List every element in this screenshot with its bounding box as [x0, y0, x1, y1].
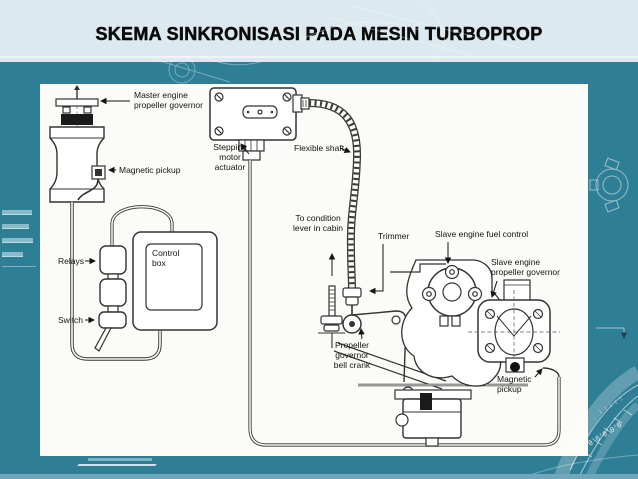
- label-line: Master engine: [134, 90, 203, 100]
- label-relays: Relays: [58, 256, 84, 266]
- arrow-decoration: [596, 328, 624, 338]
- watermark-line: [2, 252, 23, 257]
- slide: SKEMA SINKRONISASI PADA MESIN TURBOPROP: [0, 0, 638, 479]
- label-line: Magnetic: [497, 374, 532, 384]
- footer-text-strip: [88, 458, 152, 461]
- gear-sketch-decoration: [590, 158, 628, 212]
- label-master-governor: Master engine propeller governor: [134, 90, 203, 110]
- label-line: Relays: [58, 256, 84, 266]
- label-control-box: Control box: [152, 248, 179, 268]
- label-line: lever in cabin: [283, 223, 353, 233]
- label-fuel-control: Slave engine fuel control: [435, 229, 528, 239]
- label-magnetic-pickup-slave: Magnetic pickup: [497, 374, 532, 394]
- footer-bottom-strip: [0, 474, 638, 479]
- label-line: Flexible shaft: [294, 143, 344, 153]
- label-line: Control: [152, 248, 179, 258]
- label-magnetic-pickup-master: Magnetic pickup: [119, 165, 180, 175]
- label-line: Magnetic pickup: [119, 165, 180, 175]
- label-stepping-motor: Stepping motor actuator: [204, 142, 256, 172]
- label-flexible-shaft: Flexible shaft: [294, 143, 344, 153]
- label-condition-lever: To condition lever in cabin: [283, 213, 353, 233]
- label-line: pickup: [497, 384, 532, 394]
- label-line: bell crank: [316, 360, 388, 370]
- label-slave-governor: Slave engine propeller governor: [491, 257, 560, 277]
- label-line: To condition: [283, 213, 353, 223]
- label-line: Slave engine: [491, 257, 560, 267]
- label-bell-crank: Propeller governor bell crank: [316, 340, 388, 370]
- footer-decoration-line: [77, 464, 157, 466]
- label-line: Propeller: [316, 340, 388, 350]
- label-trimmer: Trimmer: [378, 231, 409, 241]
- watermark-line: [2, 238, 33, 243]
- label-line: Trimmer: [378, 231, 409, 241]
- watermark-line: [2, 210, 32, 215]
- label-line: propeller governor: [134, 100, 203, 110]
- label-line: governor: [316, 350, 388, 360]
- label-line: Switch: [58, 315, 83, 325]
- watermark-rule: [2, 266, 36, 267]
- label-line: actuator: [204, 162, 256, 172]
- label-line: Slave engine fuel control: [435, 229, 528, 239]
- header-rule: [0, 56, 638, 58]
- svg-text:0'0'0'0'0: 0'0'0'0'0: [587, 421, 623, 448]
- sidebar-watermark: [2, 210, 36, 267]
- label-line: Stepping: [204, 142, 256, 152]
- watermark-line: [2, 224, 29, 229]
- label-switch: Switch: [58, 315, 83, 325]
- label-line: propeller governor: [491, 267, 560, 277]
- label-line: motor: [204, 152, 256, 162]
- svg-text:1 1 1 1 1: 1 1 1 1 1: [598, 396, 624, 415]
- label-line: box: [152, 258, 179, 268]
- slide-title: SKEMA SINKRONISASI PADA MESIN TURBOPROP: [0, 24, 638, 45]
